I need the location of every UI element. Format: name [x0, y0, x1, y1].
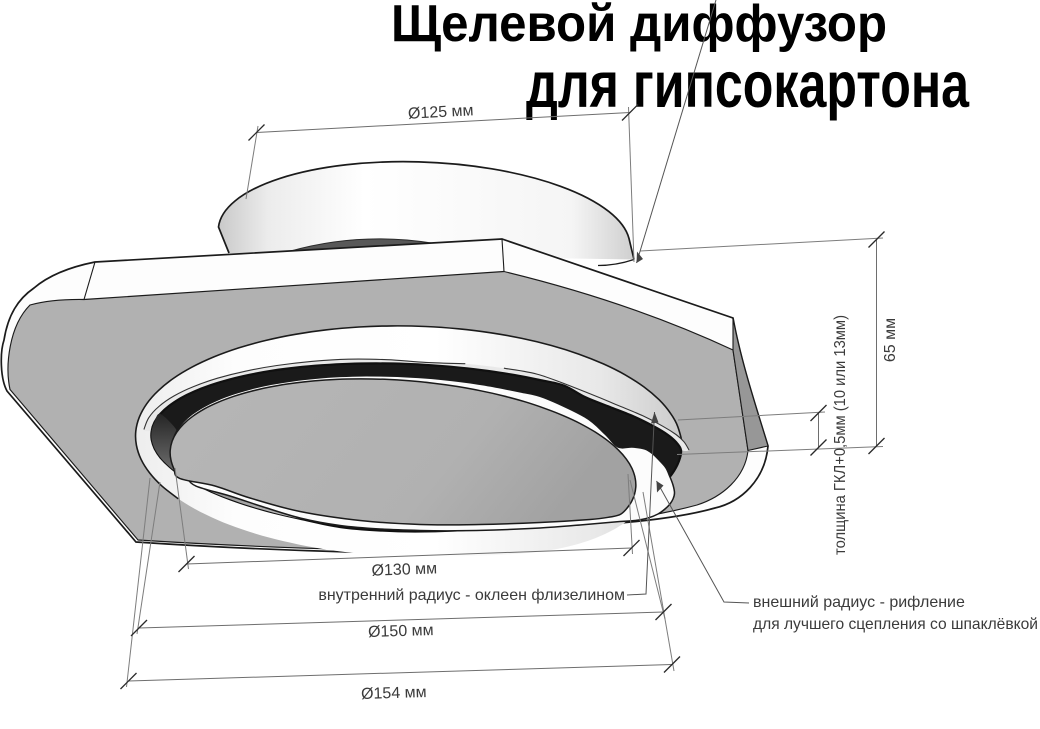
svg-text:внешний радиус - рифление: внешний радиус - рифление: [753, 594, 965, 611]
svg-text:внутренний радиус - оклеен фли: внутренний радиус - оклеен флизелином: [318, 587, 625, 604]
svg-text:Ø130 мм: Ø130 мм: [371, 560, 437, 579]
svg-text:Ø125 мм: Ø125 мм: [408, 102, 474, 122]
svg-text:толщина ГКЛ+0,5мм (10 или 13мм: толщина ГКЛ+0,5мм (10 или 13мм): [832, 315, 849, 555]
svg-text:Ø154 мм: Ø154 мм: [361, 684, 427, 703]
svg-text:Ø150 мм: Ø150 мм: [368, 622, 434, 641]
svg-text:для лучшего сцепления со шпакл: для лучшего сцепления со шпаклёвкой: [753, 616, 1038, 633]
svg-text:65 мм: 65 мм: [882, 318, 899, 362]
svg-text:для гипсокартона: для гипсокартона: [526, 48, 970, 121]
svg-text:Щелевой диффузор: Щелевой диффузор: [391, 0, 887, 53]
